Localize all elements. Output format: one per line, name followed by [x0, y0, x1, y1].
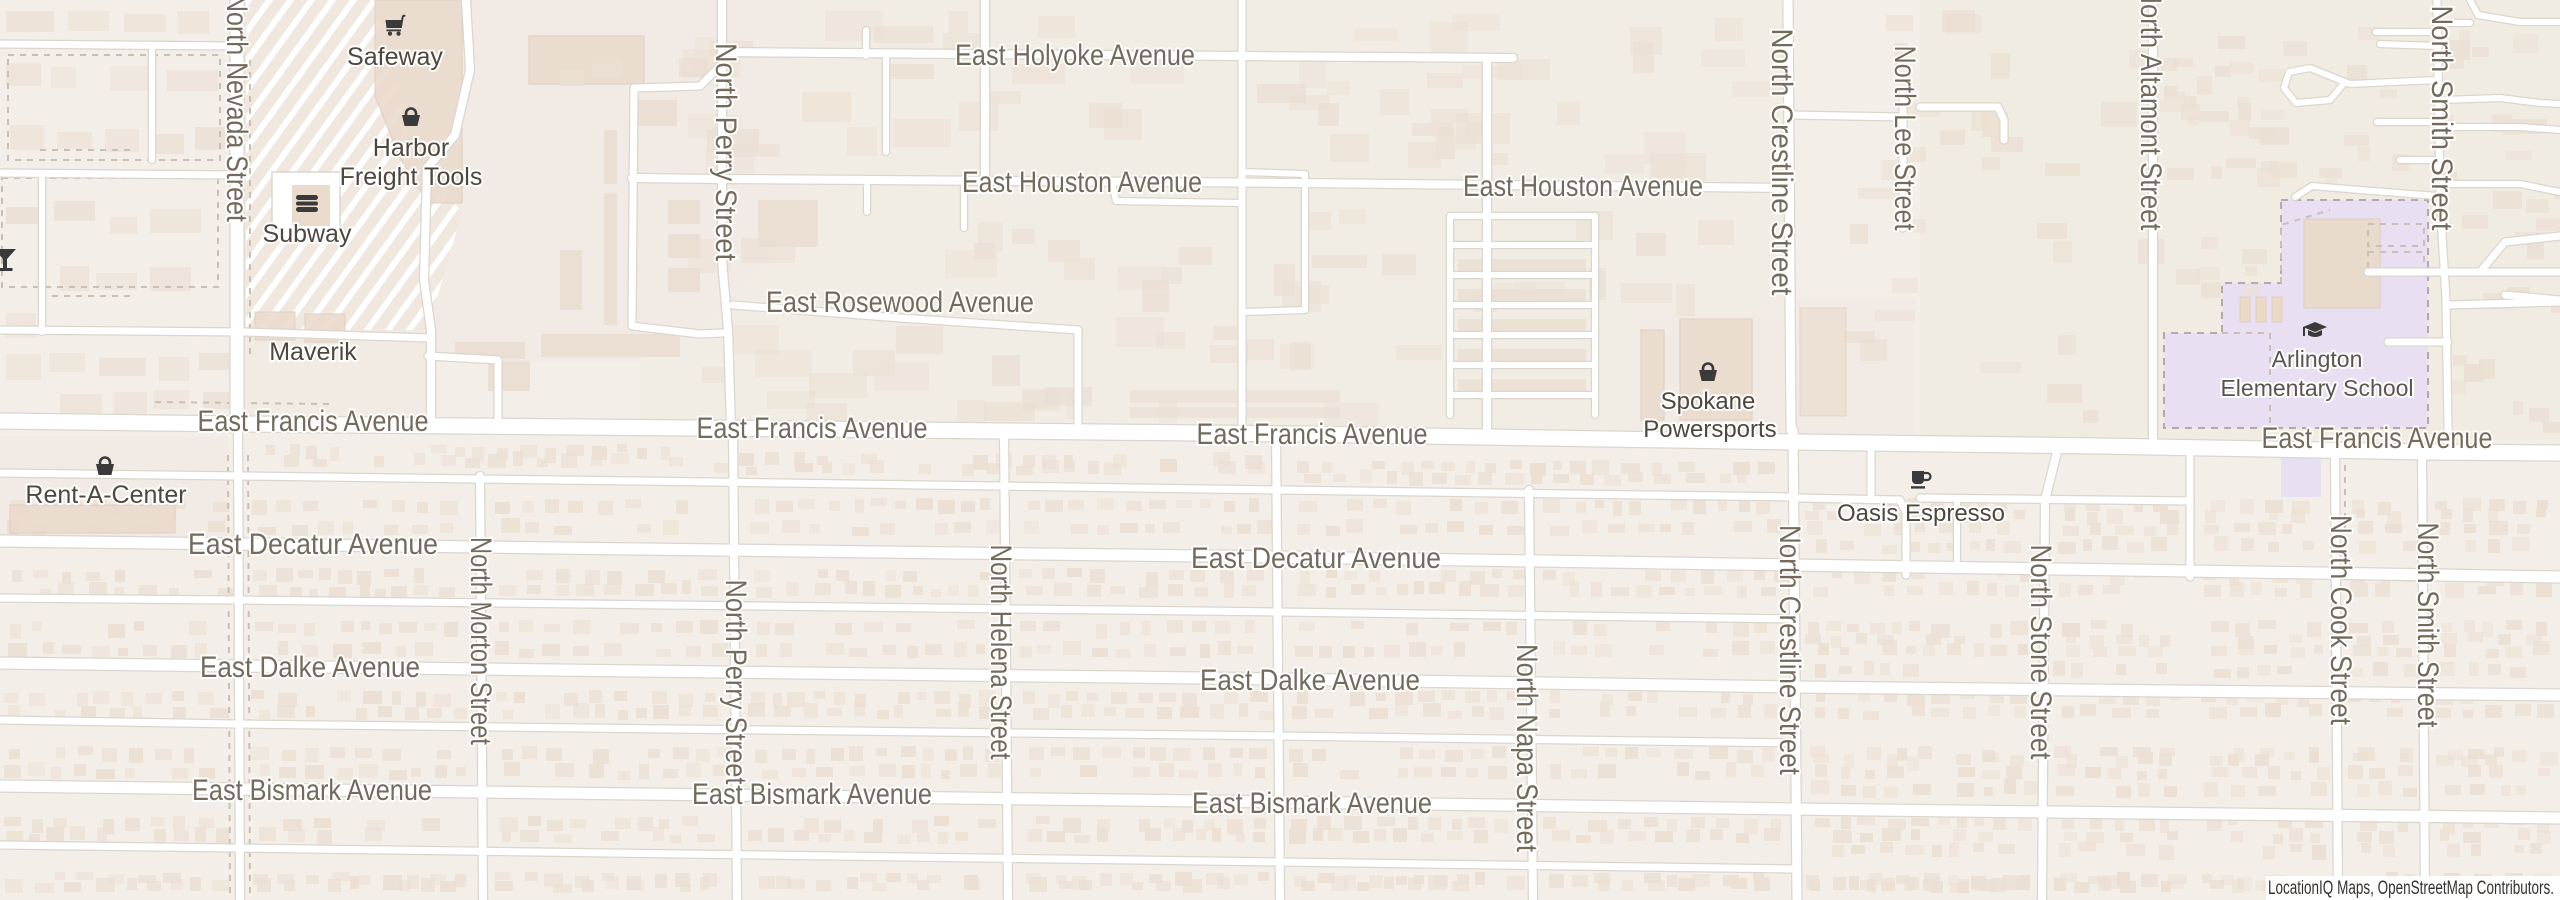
svg-text:East Houston Avenue: East Houston Avenue	[1463, 170, 1703, 203]
svg-text:East Decatur Avenue: East Decatur Avenue	[1191, 542, 1441, 575]
svg-text:East Decatur Avenue: East Decatur Avenue	[188, 528, 438, 561]
svg-text:North Lee Street: North Lee Street	[1888, 46, 1921, 232]
svg-text:North Napa Street: North Napa Street	[1510, 644, 1543, 853]
svg-text:Oasis Espresso: Oasis Espresso	[1837, 500, 2005, 527]
svg-text:North Helena Street: North Helena Street	[984, 545, 1017, 761]
svg-text:East Houston Avenue: East Houston Avenue	[962, 166, 1202, 199]
svg-text:East Francis Avenue: East Francis Avenue	[198, 405, 429, 438]
svg-text:Elementary School: Elementary School	[2220, 375, 2413, 401]
svg-text:North Cook Street: North Cook Street	[2324, 515, 2357, 726]
svg-text:North Altamont Street: North Altamont Street	[2134, 0, 2167, 231]
svg-text:East Francis Avenue: East Francis Avenue	[2262, 422, 2493, 455]
svg-text:LocationIQ Maps, OpenStreetMap: LocationIQ Maps, OpenStreetMap Contribut…	[2268, 878, 2554, 899]
svg-text:Arlington: Arlington	[2272, 346, 2363, 372]
svg-text:East Bismark Avenue: East Bismark Avenue	[192, 774, 432, 807]
svg-text:East Bismark Avenue: East Bismark Avenue	[1192, 787, 1432, 820]
svg-text:East Francis Avenue: East Francis Avenue	[1197, 418, 1428, 451]
svg-text:Safeway: Safeway	[347, 43, 443, 71]
svg-text:North Smith Street: North Smith Street	[2425, 6, 2458, 232]
svg-text:East Francis Avenue: East Francis Avenue	[697, 412, 928, 445]
svg-text:Freight Tools: Freight Tools	[340, 163, 483, 191]
svg-text:Powersports: Powersports	[1643, 416, 1776, 443]
svg-text:East Rosewood Avenue: East Rosewood Avenue	[766, 286, 1034, 319]
svg-text:North Perry Street: North Perry Street	[719, 580, 752, 786]
svg-text:Maverik: Maverik	[269, 338, 357, 366]
svg-text:North Crestline Street: North Crestline Street	[1765, 29, 1798, 297]
svg-text:North Crestline Street: North Crestline Street	[1773, 525, 1806, 776]
svg-text:North Nevada Street: North Nevada Street	[220, 0, 253, 223]
svg-text:Spokane: Spokane	[1661, 388, 1756, 415]
svg-text:East Holyoke Avenue: East Holyoke Avenue	[955, 39, 1195, 72]
svg-text:East Dalke Avenue: East Dalke Avenue	[200, 651, 420, 684]
svg-text:Rent-A-Center: Rent-A-Center	[25, 481, 186, 509]
svg-text:North Stone Street: North Stone Street	[2024, 545, 2057, 761]
svg-text:North Perry Street: North Perry Street	[709, 43, 742, 262]
svg-text:North Morton Street: North Morton Street	[464, 537, 497, 746]
svg-text:East Dalke Avenue: East Dalke Avenue	[1200, 664, 1420, 697]
svg-text:Subway: Subway	[263, 220, 352, 248]
svg-text:North Smith Street: North Smith Street	[2411, 523, 2444, 729]
svg-text:Harbor: Harbor	[373, 134, 449, 162]
